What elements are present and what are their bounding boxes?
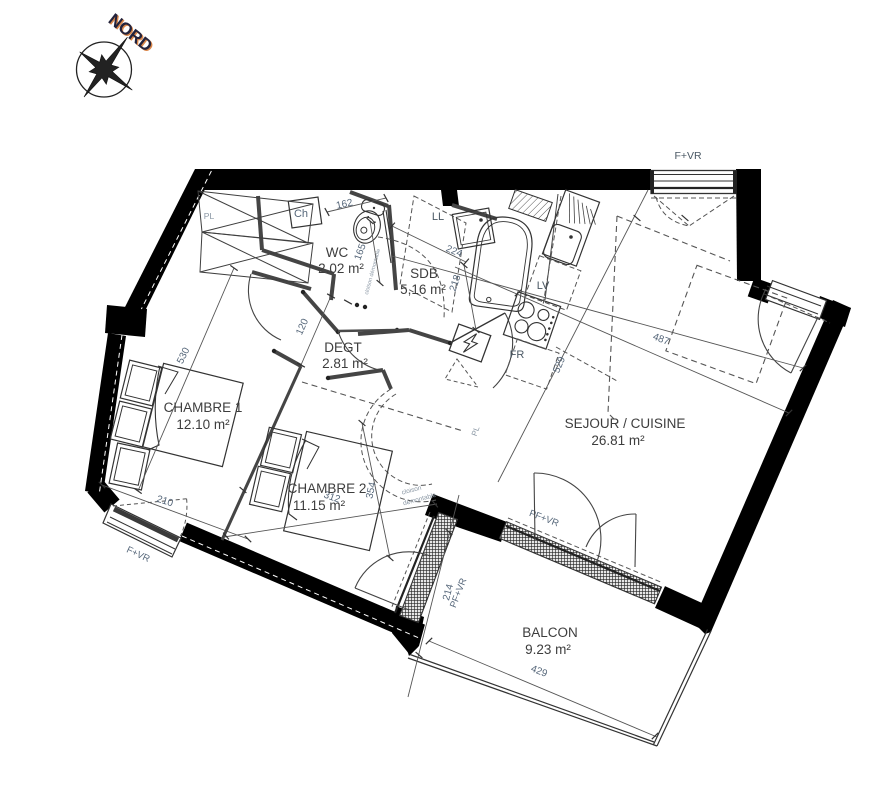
svg-text:2.81 m²: 2.81 m² xyxy=(322,356,368,371)
svg-text:SEJOUR / CUISINE: SEJOUR / CUISINE xyxy=(565,416,686,431)
svg-text:FR: FR xyxy=(510,349,525,361)
svg-text:9.23 m²: 9.23 m² xyxy=(525,642,571,657)
svg-text:SDB: SDB xyxy=(410,266,438,281)
svg-text:26.81 m²: 26.81 m² xyxy=(591,433,645,448)
svg-text:2.02 m²: 2.02 m² xyxy=(318,261,364,276)
svg-text:CHAMBRE 1: CHAMBRE 1 xyxy=(164,400,243,415)
svg-text:Ch: Ch xyxy=(294,208,308,220)
svg-text:LL: LL xyxy=(432,211,444,223)
svg-text:LV: LV xyxy=(537,280,550,292)
svg-text:PL: PL xyxy=(204,211,215,221)
svg-text:DEGT: DEGT xyxy=(324,340,362,355)
svg-text:WC: WC xyxy=(326,245,349,260)
svg-text:11.15 m²: 11.15 m² xyxy=(293,498,346,513)
svg-text:12.10 m²: 12.10 m² xyxy=(176,417,230,432)
svg-text:5,16 m²: 5,16 m² xyxy=(400,282,446,297)
svg-text:BALCON: BALCON xyxy=(522,625,578,640)
svg-text:CHAMBRE 2: CHAMBRE 2 xyxy=(288,481,367,496)
svg-text:F+VR: F+VR xyxy=(674,150,702,162)
